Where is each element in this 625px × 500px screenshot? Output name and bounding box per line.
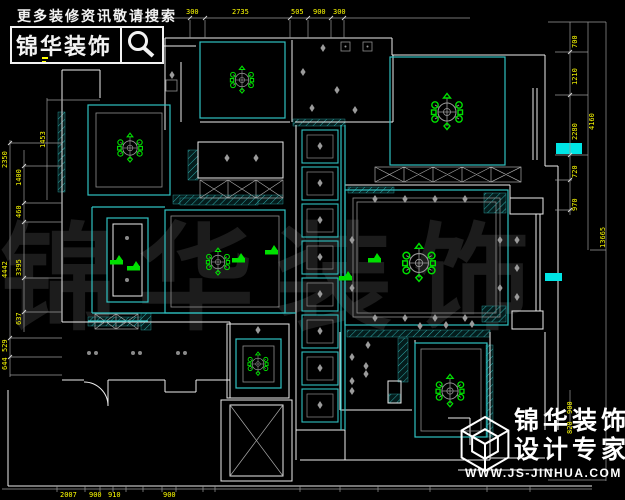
dimension-label: 1453 <box>40 131 47 148</box>
ceiling-frames-gray <box>96 42 500 431</box>
downlight-symbols <box>87 44 520 409</box>
ceiling-frames-cyan <box>88 42 508 437</box>
brand-logo-box: 锦华装饰 <box>10 26 164 64</box>
dimension-label: 529 <box>2 339 9 352</box>
corridor-coffers <box>302 130 338 422</box>
dimension-label: 505 <box>291 9 304 16</box>
dimension-label: 300 <box>333 9 346 16</box>
chandelier-icon <box>432 94 463 130</box>
header-tagline: 更多装修资讯敬请搜索 <box>17 6 177 26</box>
footer-brand-name: 锦华装饰 <box>514 407 625 436</box>
dimension-label: 4442 <box>2 261 9 278</box>
dimension-label: 2280 <box>572 123 579 140</box>
x-cross-shaft <box>230 405 283 476</box>
dimension-label: 637 <box>16 312 23 325</box>
dimension-label: 910 <box>108 492 121 499</box>
chandelier-icon <box>403 244 436 282</box>
footer-website: WWW.JS-JINHUA.COM <box>465 466 622 480</box>
dimension-label: 2735 <box>232 9 249 16</box>
chandelier-icon <box>230 66 253 93</box>
dimension-label: 13665 <box>600 227 607 248</box>
dimension-label: 4160 <box>589 113 596 130</box>
dimension-label: 700 <box>572 35 579 48</box>
green-switch-markers <box>110 245 381 281</box>
chandelier-icon <box>436 374 464 406</box>
chandelier-icon <box>206 248 229 275</box>
chandelier-icon <box>248 352 268 375</box>
footer-subtitle: 设计专家 <box>514 436 625 465</box>
search-icon <box>122 28 162 62</box>
cad-ceiling-plan: 锦华装饰 <box>0 0 625 500</box>
wall-hatch-layer <box>58 112 506 437</box>
dimension-label: 2350 <box>2 151 9 168</box>
dimension-label: 2007 <box>60 492 77 499</box>
dimension-label: 644 <box>2 357 9 370</box>
footer-brand-block: 锦华装饰 设计专家 WWW.JS-JINHUA.COM <box>455 405 625 500</box>
dimension-label: 1210 <box>572 68 579 85</box>
window-fills <box>42 57 582 281</box>
dimension-label: 3395 <box>16 259 23 276</box>
dimension-label: 1400 <box>16 169 23 186</box>
dimension-label: 900 <box>313 9 326 16</box>
door-swing-arc <box>84 382 108 406</box>
dimension-label: 900 <box>163 492 176 499</box>
dimension-label: 720 <box>572 165 579 178</box>
dimension-label: 970 <box>572 198 579 211</box>
dimension-label: 900 <box>89 492 102 499</box>
brand-name: 锦华装饰 <box>12 29 120 61</box>
dimension-label: 300 <box>186 9 199 16</box>
dimension-label: 460 <box>16 205 23 218</box>
chandelier-icon <box>118 133 143 162</box>
